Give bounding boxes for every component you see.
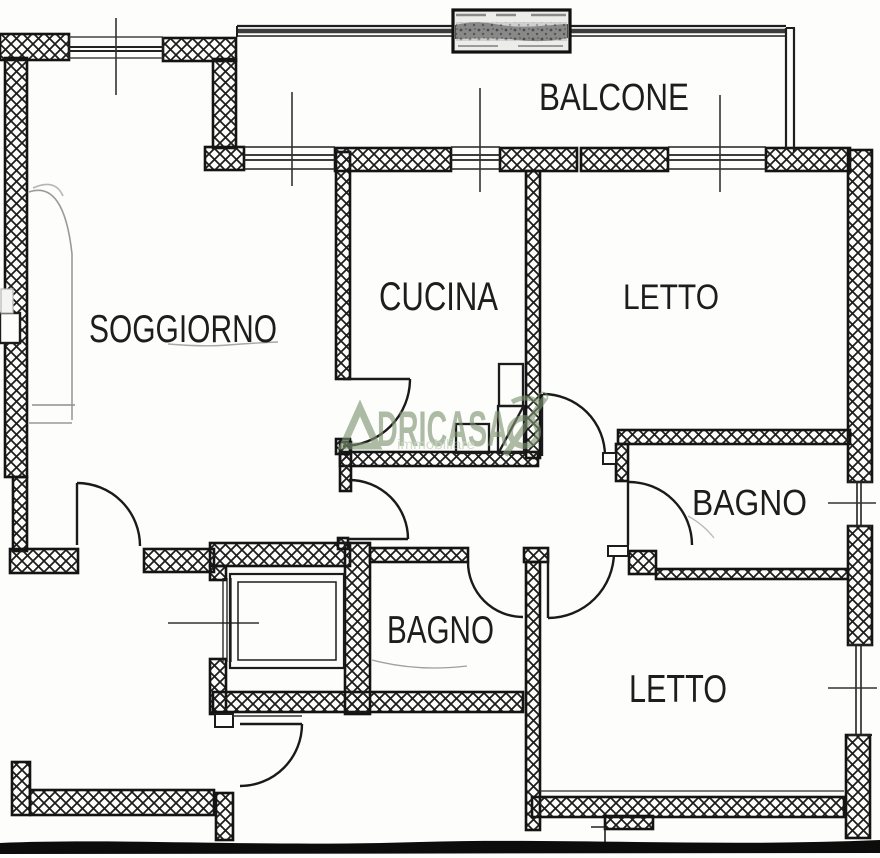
svg-text:BALCONE: BALCONE [539,77,689,119]
svg-text:immobiliare: immobiliare [397,437,475,452]
svg-text:LETTO: LETTO [629,668,727,711]
svg-text:LETTO: LETTO [623,278,719,317]
svg-text:BAGNO: BAGNO [692,482,807,523]
svg-text:BAGNO: BAGNO [387,609,494,652]
svg-text:CUCINA: CUCINA [379,275,498,319]
svg-text:SOGGIORNO: SOGGIORNO [89,308,277,351]
